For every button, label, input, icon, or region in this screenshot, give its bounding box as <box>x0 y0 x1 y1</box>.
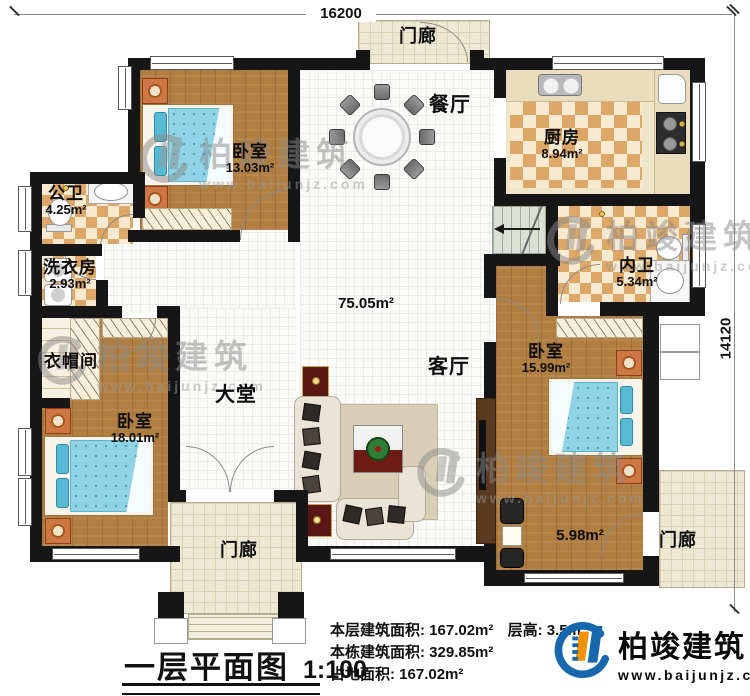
dining-chair <box>374 174 390 190</box>
window <box>330 548 456 560</box>
floor-plan-canvas: 卧室 13.03m² 公卫 4.25m² 洗衣房 2.93m² 衣帽间 卧室 1… <box>0 0 750 696</box>
cabinet-emblem-icon <box>312 515 322 525</box>
room-label-kitchen: 厨房 8.94m² <box>517 128 607 162</box>
wall <box>546 302 558 316</box>
wall <box>30 244 102 256</box>
wall <box>30 398 70 408</box>
dining-chair <box>329 129 345 145</box>
wardrobe <box>556 318 643 338</box>
wardrobe <box>142 208 232 230</box>
porch-pillar <box>356 50 370 70</box>
room-label-dining: 餐厅 <box>410 94 490 116</box>
wall <box>30 306 122 318</box>
bed-pillow <box>620 418 633 446</box>
plan-title-text: 一层平面图 <box>124 650 289 685</box>
window <box>52 548 140 560</box>
nightstand <box>616 350 642 376</box>
nightstand <box>616 458 642 484</box>
window <box>692 224 706 288</box>
speaker <box>500 498 524 524</box>
fridge <box>658 74 686 104</box>
room-label-laundry: 洗衣房 2.93m² <box>25 258 115 292</box>
dimension-value-right: 14120 <box>718 301 735 377</box>
bed-pillow <box>154 146 167 176</box>
wall <box>133 172 145 218</box>
room-label-bedroom-r: 卧室 15.99m² <box>501 342 591 376</box>
wall <box>128 230 240 242</box>
nightstand <box>45 408 71 434</box>
wall <box>494 158 506 206</box>
dimension-value-top: 16200 <box>306 5 376 22</box>
dining-table <box>353 108 411 166</box>
porch-pillar <box>158 592 184 618</box>
window <box>18 428 32 476</box>
wall <box>494 194 705 206</box>
toilet-tank <box>682 234 689 262</box>
window <box>118 66 132 110</box>
company-url: www.baijunjz.com <box>618 667 750 683</box>
company-name: 柏竣建筑 <box>618 622 750 666</box>
wall <box>643 316 659 512</box>
bed-pillow <box>154 112 167 142</box>
window <box>524 573 624 583</box>
room-label-porch-top: 门廊 <box>388 26 448 46</box>
nightstand <box>142 78 168 104</box>
room-label-public-bath: 公卫 4.25m² <box>21 184 111 218</box>
wall <box>168 490 186 502</box>
kitchen-sink-icon <box>538 74 582 96</box>
room-label-bedroom-tl: 卧室 13.03m² <box>205 142 295 176</box>
sofa-cushion <box>387 505 406 524</box>
stat-row: 本层建筑面积: 167.02m² 层高: 3.5m <box>330 620 581 642</box>
company-logo: 柏竣建筑 www.baijunjz.com <box>552 620 750 684</box>
plant-icon <box>364 435 392 463</box>
wall <box>494 58 506 98</box>
porch-pillar <box>470 50 484 70</box>
wall <box>643 556 659 586</box>
ceiling-light-icon <box>598 210 606 218</box>
stairs-arrow-line <box>502 228 540 230</box>
label-side-area: 5.98m² <box>535 528 625 545</box>
sofa-cushion <box>302 427 321 446</box>
room-label-hall: 大堂 <box>196 384 276 406</box>
porch-pillar <box>278 592 304 618</box>
speaker <box>500 548 524 568</box>
stairs-arrow-head <box>494 224 504 234</box>
stat-row: 本栋建筑面积: 329.85m² <box>330 642 581 664</box>
window <box>692 82 706 162</box>
pillar-base <box>272 618 306 644</box>
pillar-base <box>154 618 188 644</box>
company-logo-icon <box>552 620 612 684</box>
window <box>552 56 664 70</box>
room-label-porch-bottom-right: 门廊 <box>648 530 708 550</box>
dining-chair <box>374 84 390 100</box>
bed-pillow <box>56 478 69 508</box>
porch-bottom-right-floor <box>659 470 745 588</box>
sofa-cushion <box>342 504 362 524</box>
sofa-cushion <box>365 507 384 526</box>
title-underline <box>122 683 320 695</box>
window <box>18 478 32 526</box>
room-label-cloakroom: 衣帽间 <box>26 352 116 371</box>
cabinet-emblem-icon <box>311 376 321 386</box>
room-label-inner-bath: 内卫 5.34m² <box>592 256 682 290</box>
wall <box>30 172 140 184</box>
bed-pillow <box>56 444 69 474</box>
building-stats: 本层建筑面积: 167.02m² 层高: 3.5m 本栋建筑面积: 329.85… <box>330 620 581 686</box>
bed-blanket-fold <box>552 382 580 452</box>
room-label-porch-bottom-left: 门廊 <box>209 540 269 560</box>
window-bay <box>660 324 700 352</box>
wall <box>168 306 180 502</box>
side-table <box>502 526 522 546</box>
room-label-living: 客厅 <box>409 356 489 378</box>
dining-chair <box>419 129 435 145</box>
stat-row: 占地面积: 167.02m² <box>330 664 581 686</box>
window-bay <box>660 352 700 380</box>
nightstand <box>45 518 71 544</box>
sofa-cushion <box>302 403 321 422</box>
room-label-bedroom-bl: 卧室 18.01m² <box>90 412 180 446</box>
bed-blanket-fold <box>120 440 150 512</box>
label-central-area: 75.05m² <box>321 296 411 313</box>
window <box>150 56 234 70</box>
wall <box>546 206 558 302</box>
tv-icon <box>479 420 486 490</box>
bed-pillow <box>620 386 633 414</box>
sofa-cushion <box>302 451 322 471</box>
stove-icon <box>656 112 686 154</box>
